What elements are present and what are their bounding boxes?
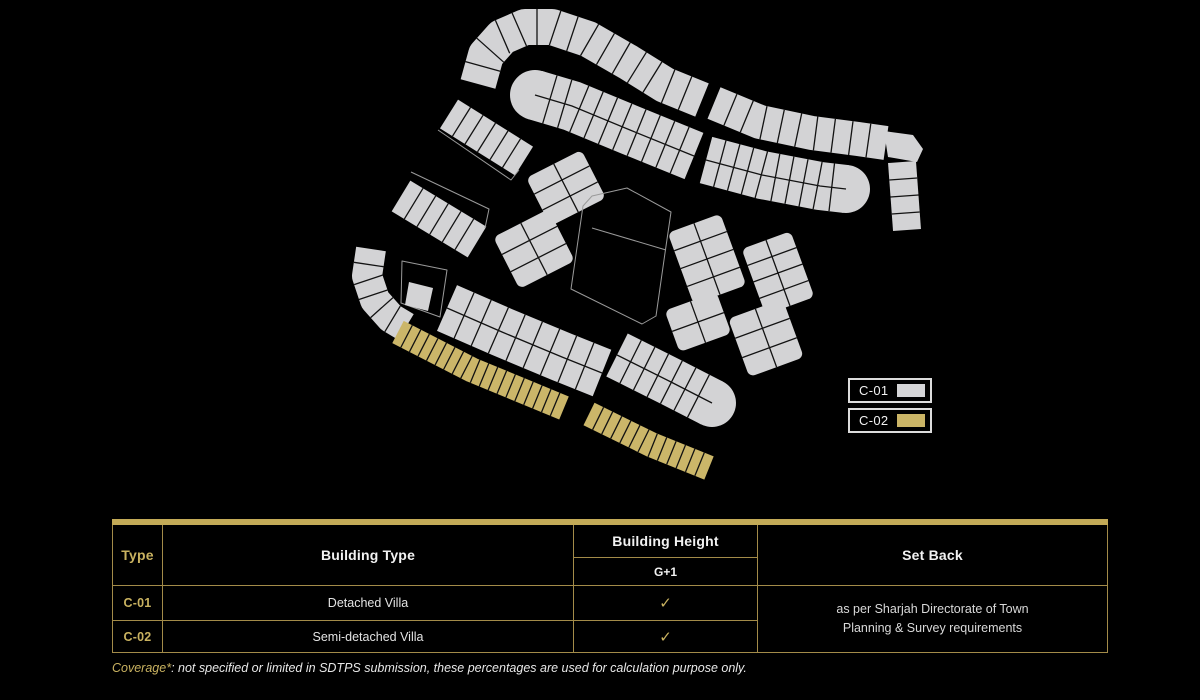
plan-shape-corner-plot [884, 131, 923, 162]
legend-swatch-c02 [897, 414, 925, 427]
row-c01-check-icon: ✓ [574, 586, 758, 621]
plan-band-west-hook [354, 249, 406, 332]
plan-block-ne-1 [668, 214, 747, 305]
page: C-01 C-02 Type Building Type Building He… [0, 0, 1200, 700]
row-c02-check-icon: ✓ [574, 621, 758, 652]
footnote: Coverage*: not specified or limited in S… [112, 661, 747, 675]
spec-table-grid: Type Building Type Building Height G+1 S… [112, 525, 1108, 653]
legend-item-c01: C-01 [848, 378, 932, 403]
legend-label-c01: C-01 [859, 383, 888, 398]
plan-block-nw-2 [493, 209, 575, 289]
plan-shape-ghost-plot [405, 282, 433, 311]
col-header-building-height: Building Height [574, 525, 758, 558]
row-c02-building-type: Semi-detached Villa [163, 621, 574, 652]
legend-swatch-c01 [897, 384, 925, 397]
col-header-building-type: Building Type [163, 525, 574, 586]
legend-label-c02: C-02 [859, 413, 888, 428]
col-header-set-back: Set Back [758, 525, 1107, 586]
plan-block-se-1 [665, 292, 732, 352]
set-back-note: as per Sharjah Directorate of Town Plann… [758, 586, 1107, 652]
footnote-prefix: Coverage* [112, 661, 171, 675]
row-c01-building-type: Detached Villa [163, 586, 574, 621]
legend-item-c02: C-02 [848, 408, 932, 433]
spec-table: Type Building Type Building Height G+1 S… [112, 519, 1108, 653]
col-header-type: Type [113, 525, 163, 586]
footnote-text: : not specified or limited in SDTPS subm… [171, 661, 747, 675]
plan-block-se-2 [728, 299, 804, 377]
plan-band-west-strip-1 [449, 107, 524, 167]
row-c02-type: C-02 [113, 621, 163, 652]
plan-band-lower-row-east [617, 340, 736, 427]
plan-band-east-strip [889, 162, 919, 230]
plan-shape-central-plot [571, 188, 671, 324]
row-c01-type: C-01 [113, 586, 163, 621]
sub-header-g1: G+1 [574, 558, 758, 586]
